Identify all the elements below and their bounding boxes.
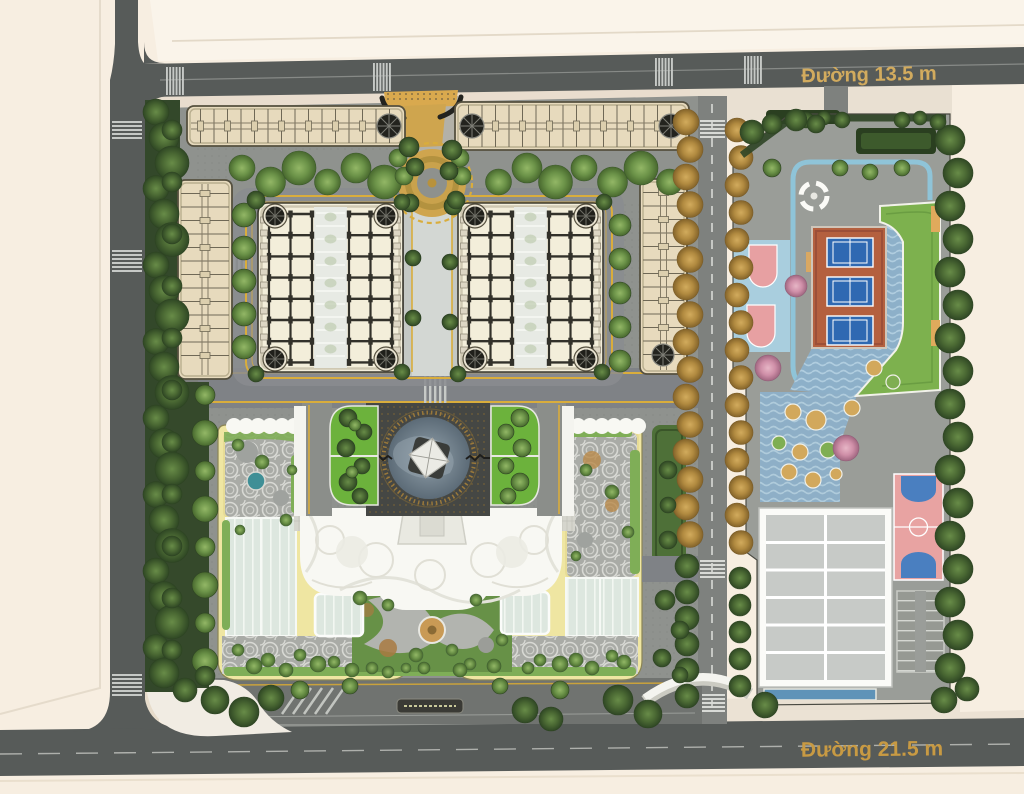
svg-text:Đường 21.5 m: Đường 21.5 m — [801, 737, 943, 761]
svg-text:Đường 13.5 m: Đường 13.5 m — [801, 63, 937, 88]
